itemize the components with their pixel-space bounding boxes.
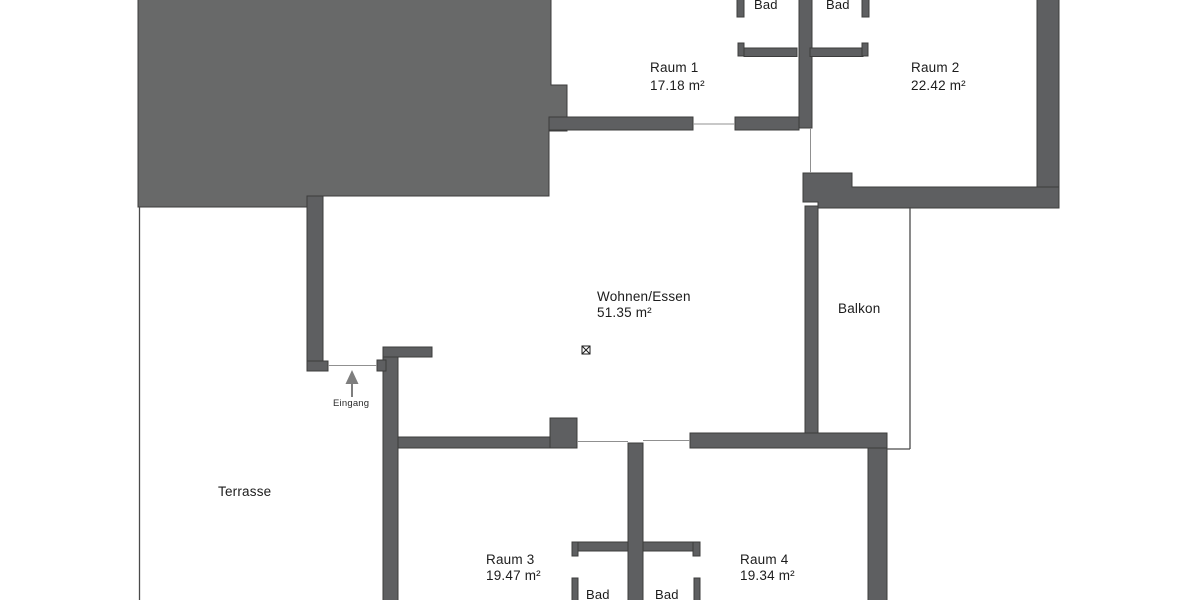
entrance-label: Eingang	[333, 399, 369, 409]
room-label-bad-bottom-left: Bad	[586, 588, 610, 600]
wall-bad-right-bottom	[810, 48, 863, 57]
wall-bad-left-cap	[738, 43, 744, 56]
wall-center-top	[799, 0, 812, 128]
room-area: 19.47 m²	[486, 568, 541, 584]
wall-entrance-jamb	[377, 360, 386, 371]
room-label-raum1: Raum 1 17.18 m²	[650, 59, 705, 95]
room-label-bad-bottom-right: Bad	[655, 588, 679, 600]
room-area: 22.42 m²	[911, 77, 966, 95]
room-name: Raum 3	[486, 552, 534, 567]
room-name: Raum 2	[911, 60, 959, 75]
room-area: 19.34 m²	[740, 568, 795, 584]
room-name: Raum 4	[740, 552, 788, 567]
wall-outer-right	[1037, 0, 1059, 207]
room-label-terrasse: Terrasse	[218, 483, 271, 501]
wall-bad-right-cap	[862, 43, 868, 56]
wall-lower-horizontal	[690, 433, 887, 448]
wall-bad-bl-top	[578, 542, 628, 551]
room-label-raum2: Raum 2 22.42 m²	[911, 59, 966, 95]
room-label-raum3: Raum 3 19.47 m²	[486, 552, 541, 584]
wall-raum3-top	[395, 437, 550, 448]
room-area: 17.18 m²	[650, 77, 705, 95]
wall-bad-bl-cap	[572, 542, 578, 556]
room-label-raum4: Raum 4 19.34 m²	[740, 552, 795, 584]
wall-bad-bl-stub	[572, 578, 578, 600]
wall-pillar	[550, 418, 577, 448]
room-label-bad-top-left: Bad	[754, 0, 778, 12]
shaft-symbol-icon	[582, 346, 590, 354]
room-label-balkon: Balkon	[838, 300, 880, 318]
wall-left-stub	[383, 347, 432, 357]
wall-raum2-bottom	[803, 173, 1059, 208]
room-name: Wohnen/Essen	[597, 289, 691, 304]
wall-bad-br-stub	[694, 578, 700, 600]
wall-bad-right-stub	[862, 0, 869, 17]
wall-raum1-bottom-left	[549, 117, 693, 130]
entrance-arrow-icon	[346, 370, 359, 397]
wall-entrance-left	[307, 196, 323, 371]
wall-center-bottom	[628, 443, 643, 600]
wall-raum1-bottom-right	[735, 117, 799, 130]
wall-left-vertical	[383, 347, 398, 600]
wall-lower-right-vertical	[868, 448, 887, 600]
wall-bad-left-bottom	[744, 48, 797, 57]
room-name: Raum 1	[650, 60, 698, 75]
room-label-wohnen-essen: Wohnen/Essen 51.35 m²	[597, 289, 691, 321]
building-block	[138, 0, 567, 207]
wall-bad-br-top	[643, 542, 694, 551]
room-area: 51.35 m²	[597, 305, 691, 321]
wall-balcony-left	[805, 206, 818, 434]
room-label-bad-top-right: Bad	[826, 0, 850, 12]
wall-bad-left-stub	[737, 0, 744, 17]
floor-plan: Bad Bad Raum 1 17.18 m² Raum 2 22.42 m² …	[0, 0, 1200, 600]
wall-bad-br-cap	[693, 542, 700, 556]
wall-entrance-foot	[307, 361, 328, 371]
